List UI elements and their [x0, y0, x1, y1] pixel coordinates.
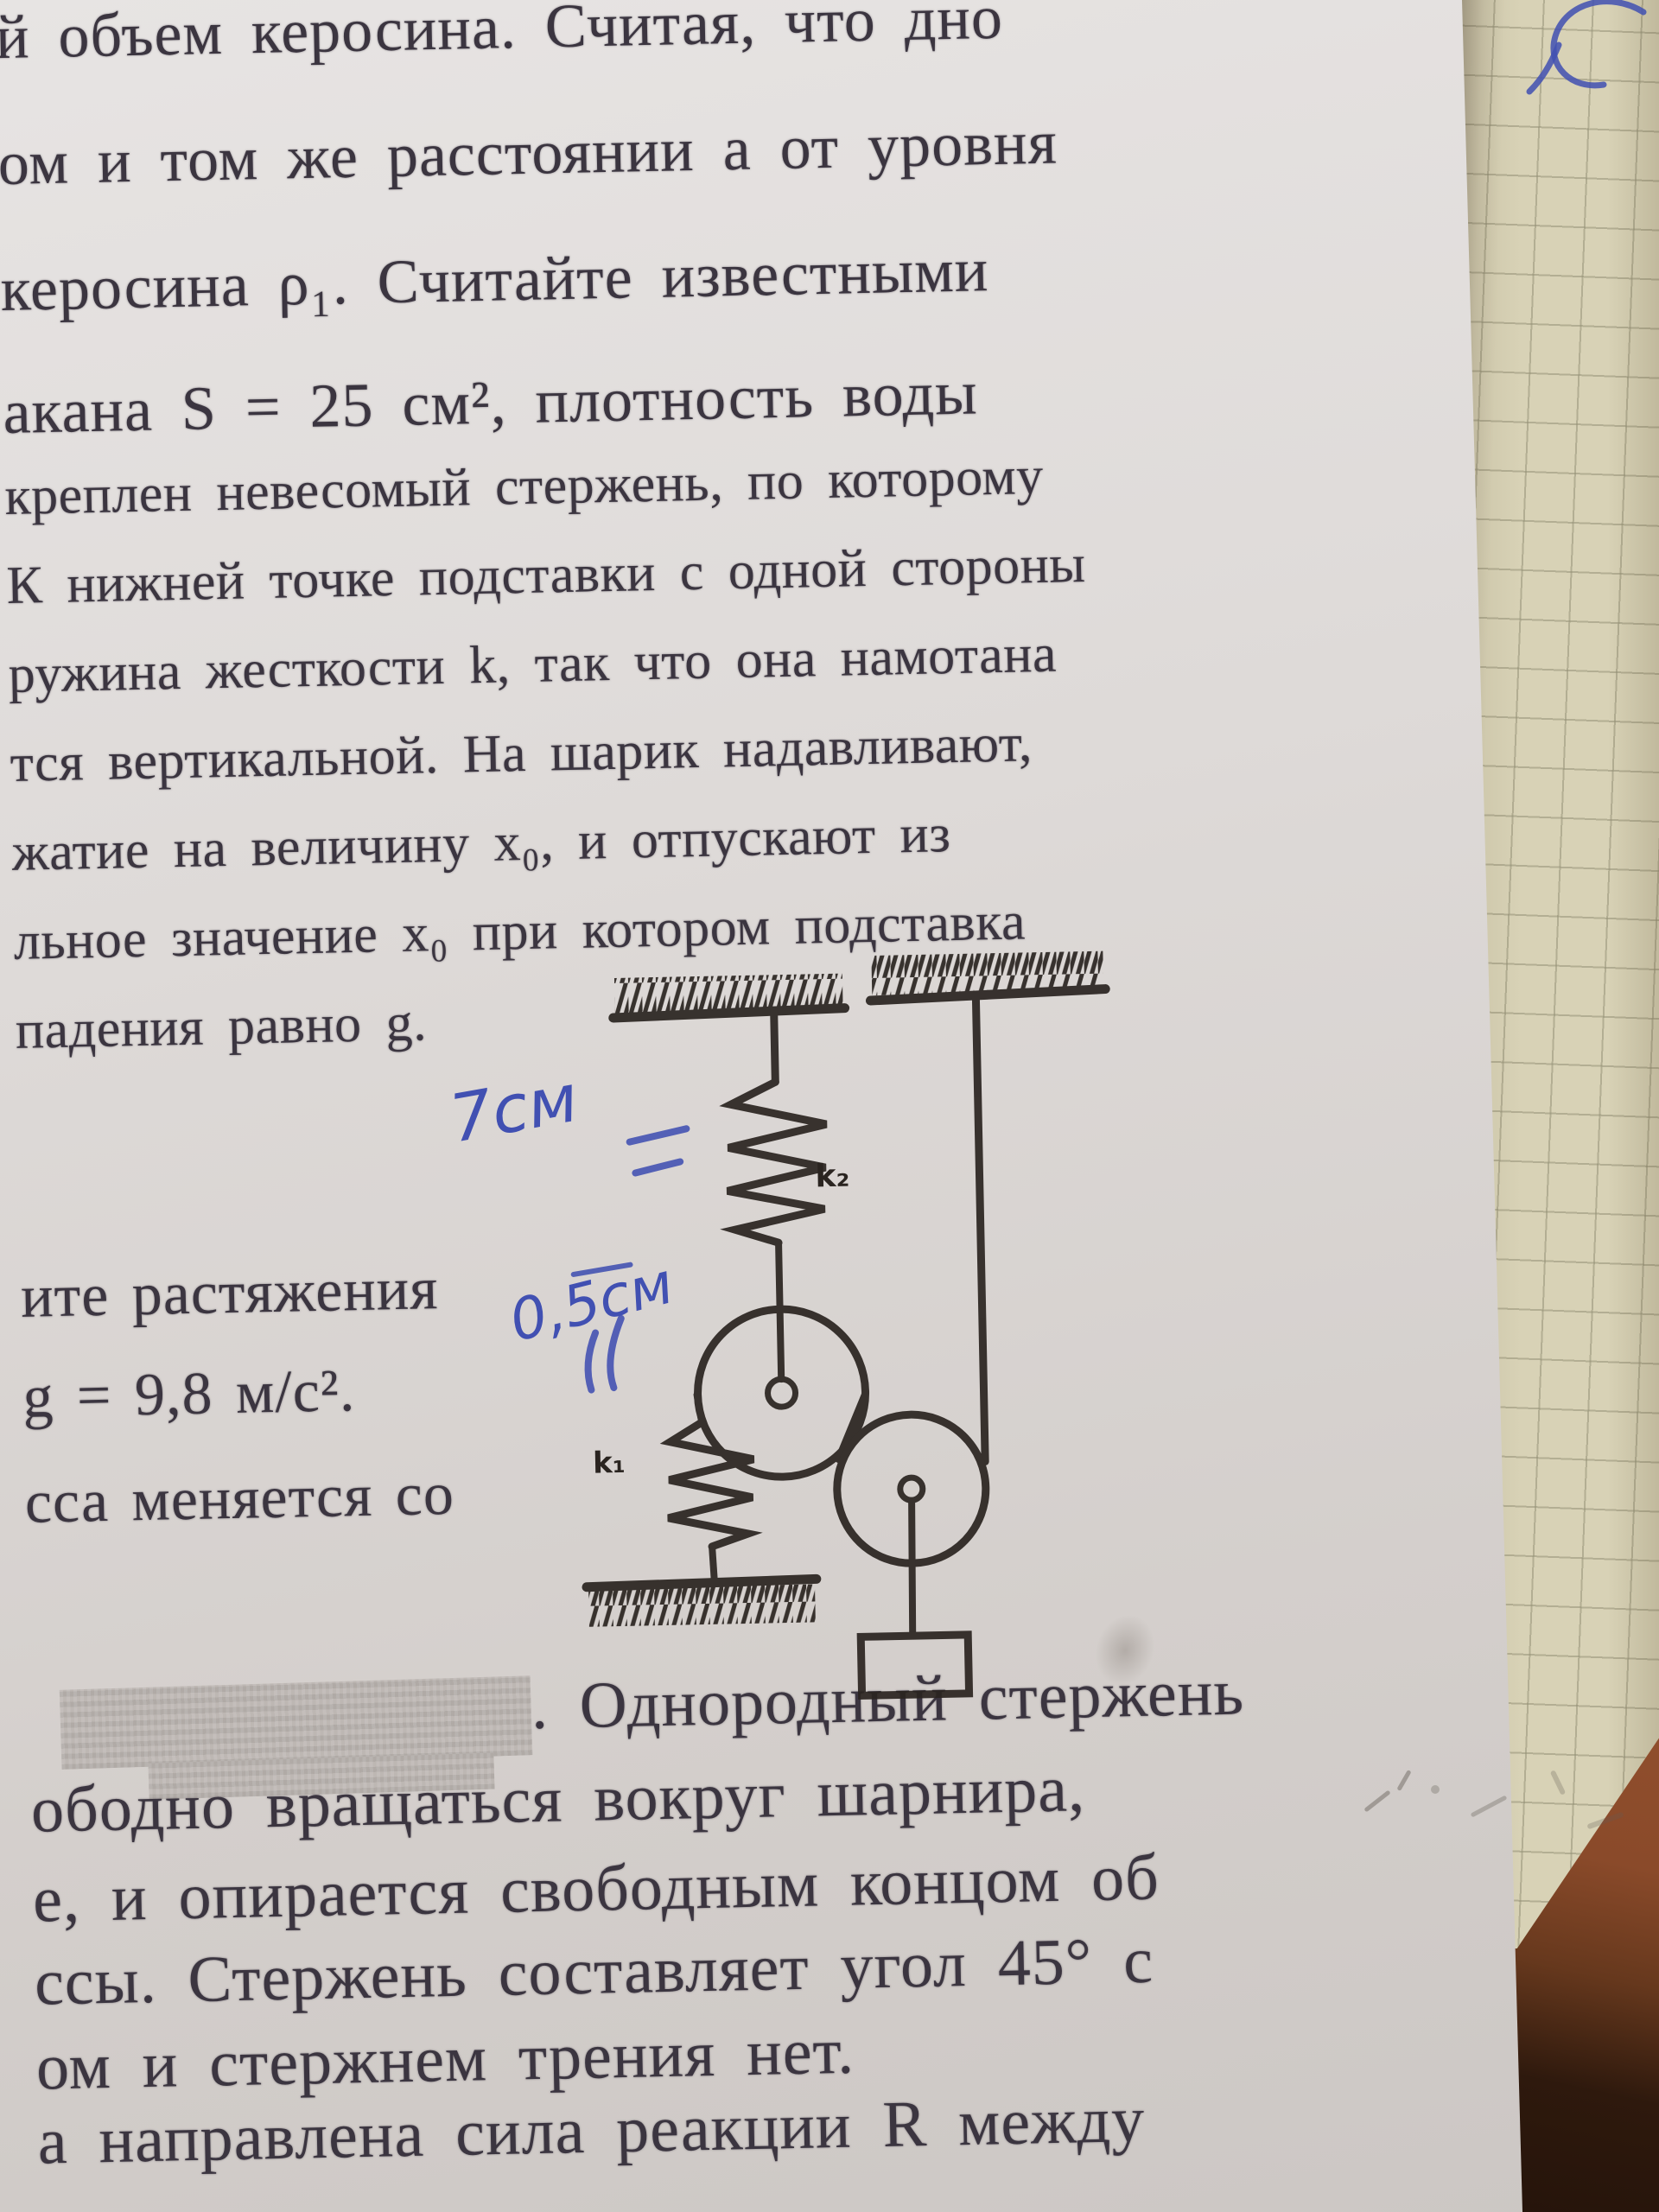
floor-hatch: [588, 1584, 816, 1626]
problem-sheet: й объем керосина. Считая, что дно ом и т…: [0, 0, 1659, 2212]
hanging-weight: [861, 1635, 969, 1695]
pencil-mark: [1431, 1785, 1440, 1794]
photo-of-textbook-page: й объем керосина. Считая, что дно ом и т…: [0, 0, 1659, 2212]
doodle-arc: [1554, 2, 1643, 86]
label-k1: k₁: [593, 1446, 626, 1481]
equals-mark: [629, 1128, 686, 1141]
rope-left: [697, 1395, 702, 1422]
pulley-spring-figure: k₂ k₁ 7см 0,5см: [0, 0, 1659, 2211]
rod-pulley-to-weight: [910, 1503, 914, 1636]
handwritten-7cm: 7см: [444, 1059, 583, 1158]
label-k2: k₂: [815, 1159, 850, 1195]
pulley-top-axle: [767, 1379, 796, 1408]
doodle-tail: [1529, 45, 1559, 92]
rod-spring-to-floor: [712, 1547, 715, 1583]
page-content: й объем керосина. Считая, что дно ом и т…: [0, 0, 1659, 2211]
arrow-mark: [588, 1332, 597, 1389]
rope-right-support: [976, 997, 985, 1462]
pen-circle-doodle: [1521, 0, 1659, 121]
pulley-bottom-axle: [900, 1478, 924, 1501]
spring-k2: [725, 1081, 829, 1243]
equals-mark: [635, 1161, 680, 1173]
rod-ceiling-to-spring: [774, 1011, 776, 1082]
